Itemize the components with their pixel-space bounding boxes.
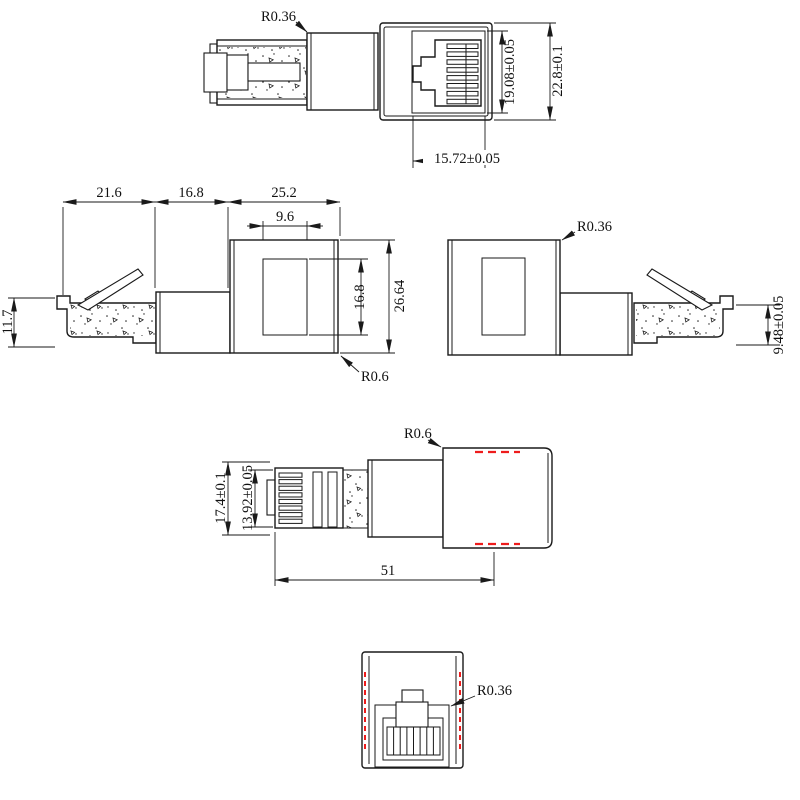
leader-r036 [562,232,575,240]
dim-body-height: 26.64 [392,279,408,312]
jack-body [230,240,338,353]
dim-inner-width: 15.72±0.05 [434,151,500,167]
latch-base-front [396,702,428,727]
dim-window-width: 9.6 [276,209,294,225]
dim-plug-width: 13.92±0.05 [240,465,256,531]
view-bottom-front: R0.36 [362,652,512,768]
body-top [443,448,552,548]
jack-body-mirror [448,240,560,355]
leader-r036 [296,22,307,32]
dim-barrel-length: 16.8 [178,185,203,201]
barrel-block-mirror [560,293,632,355]
dim-radius-mirror: R0.36 [577,219,612,235]
dim-outer-height: 22.8±0.1 [550,45,566,96]
dim-radius-top: R0.36 [261,9,296,25]
dim-body-length: 25.2 [271,185,296,201]
contact-bar [248,63,300,81]
dim-plug-length: 21.6 [96,185,121,201]
dim-radius-body: R0.6 [361,369,389,385]
view-side-section-right: R0.36 9.48±0.05 [448,219,787,355]
view-top-plan: R0.6 17.4±0.1 13.92±0.05 51 [213,426,552,586]
dim-overall-length: 51 [381,563,396,579]
barrel-top [368,460,443,537]
latch-tab-top [267,480,275,515]
barrel-block [156,292,230,353]
cable-boot-inner [227,55,248,90]
view-top-side: R0.36 19.08±0.05 22.8±0.1 15.72±0.05 [204,9,566,168]
plug-fill-texture [636,304,720,336]
plug-fill-texture [70,304,155,336]
drawing-sheet: R0.36 19.08±0.05 22.8±0.1 15.72±0.05 21.… [0,0,800,800]
barrel-block [307,33,378,110]
dim-plug-thickness: 9.48±0.05 [771,296,787,355]
view-side-section-left: 21.6 16.8 25.2 9.6 11.7 [0,185,408,385]
latch-tab-front [402,690,423,702]
dim-window-height: 16.8 [352,284,368,309]
cable-boot-outer [204,53,227,92]
dim-radius-bottom: R0.36 [477,683,512,699]
leader-r06 [341,356,359,372]
dim-inner-height: 19.08±0.05 [502,39,518,105]
dim-radius-plan: R0.6 [404,426,432,442]
cad-drawing: R0.36 19.08±0.05 22.8±0.1 15.72±0.05 21.… [0,0,800,800]
dim-overall-width: 17.4±0.1 [213,472,229,523]
dim-plug-height: 11.7 [0,310,16,335]
